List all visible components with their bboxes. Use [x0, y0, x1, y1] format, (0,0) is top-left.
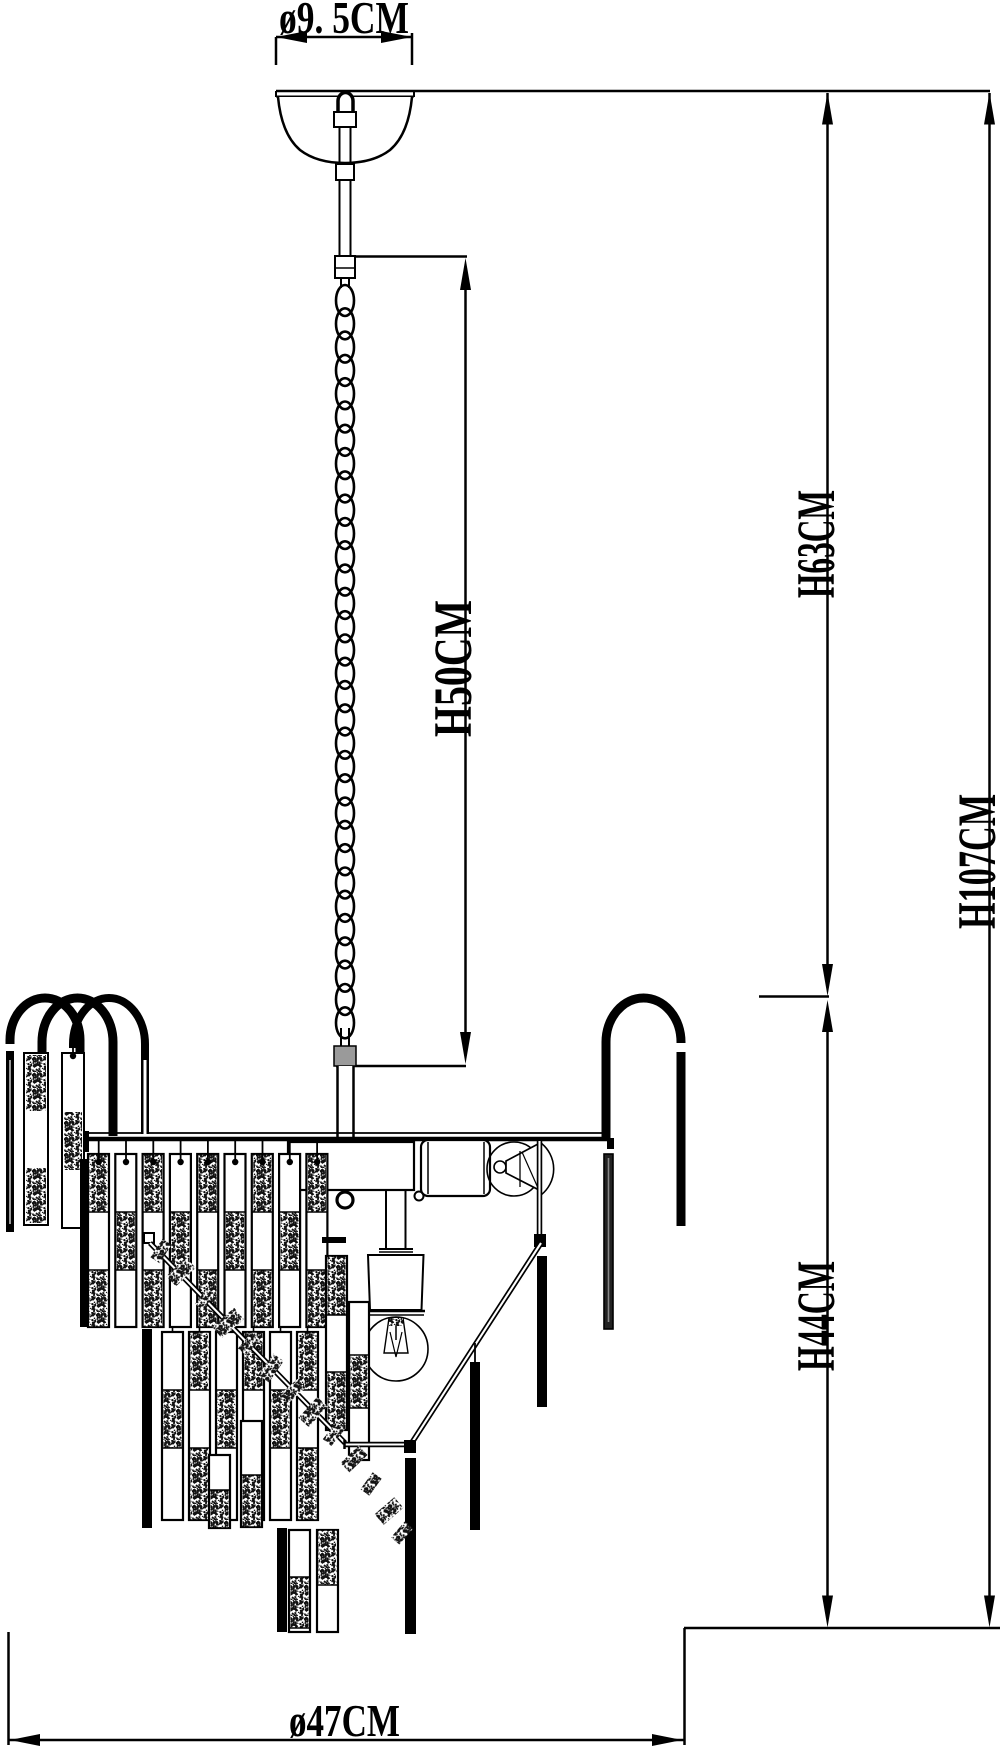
svg-text:H63CM: H63CM	[786, 490, 846, 598]
svg-text:H107CM: H107CM	[947, 794, 1000, 929]
svg-text:ø9. 5CM: ø9. 5CM	[279, 0, 409, 43]
svg-text:H44CM: H44CM	[786, 1261, 846, 1371]
svg-text:H50CM: H50CM	[423, 600, 483, 737]
svg-text:ø47CM: ø47CM	[289, 1695, 400, 1746]
